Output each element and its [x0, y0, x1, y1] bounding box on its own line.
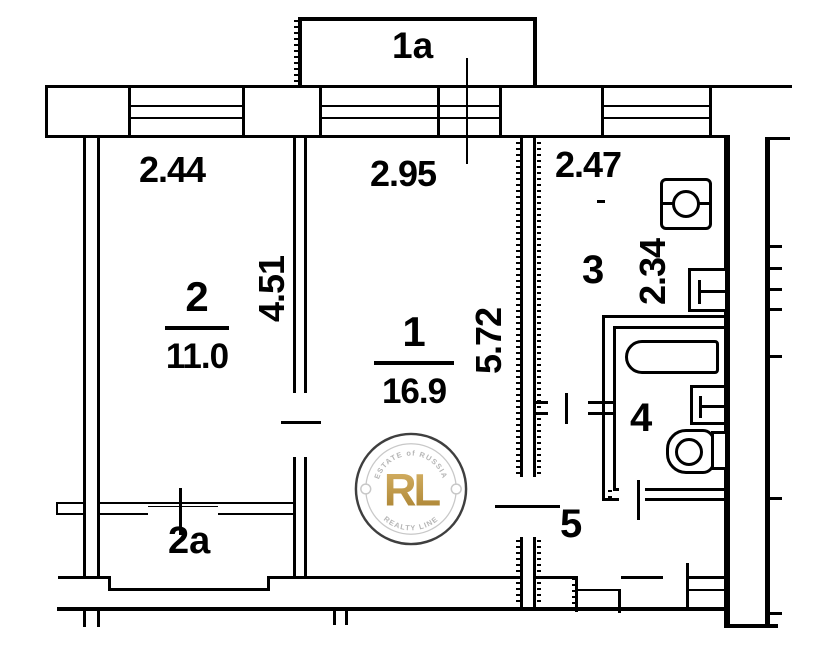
wall-hatch — [537, 142, 541, 475]
watermark-left-dot — [361, 484, 371, 494]
wall-segment — [565, 393, 568, 424]
wall-segment — [495, 505, 560, 508]
wall-segment — [613, 488, 619, 491]
toilet-tank-icon — [711, 431, 728, 470]
floor-plan: 2.44 2.95 2.47 4.51 5.72 2.34 2 11.0 1 1… — [0, 0, 837, 650]
wall-segment — [97, 611, 100, 627]
wall-segment — [45, 85, 48, 138]
wall-segment — [613, 326, 616, 488]
wall-segment — [645, 498, 726, 501]
wall-segment — [97, 138, 100, 578]
wall-segment — [575, 576, 578, 612]
wall-segment — [333, 611, 336, 625]
wall-segment — [688, 589, 726, 591]
wash-basin-icon — [690, 385, 727, 425]
wall-segment — [319, 85, 322, 138]
wall-segment — [466, 58, 468, 164]
watermark-monogram: RL — [384, 465, 441, 516]
bathtub-icon — [625, 340, 719, 374]
wall-segment — [108, 588, 270, 591]
wall-segment — [604, 105, 709, 107]
wall-segment — [770, 267, 782, 270]
wall-segment — [45, 85, 792, 88]
wall-segment — [520, 138, 523, 477]
wall-segment — [637, 480, 640, 520]
wall-segment — [298, 17, 302, 87]
wall-segment — [601, 85, 604, 138]
wall-segment — [499, 85, 502, 138]
room-1-area: 16.9 — [352, 374, 476, 409]
wall-segment — [322, 117, 437, 119]
room-1-number: 1 — [374, 311, 453, 365]
watermark-right-dot — [451, 484, 461, 494]
wall-hatch — [516, 540, 520, 604]
wall-segment — [304, 138, 307, 393]
wall-segment — [345, 611, 348, 625]
wall-segment — [57, 607, 729, 611]
wall-segment — [131, 117, 242, 119]
wall-segment — [533, 17, 537, 87]
room-2-area: 11.0 — [132, 339, 262, 374]
wall-segment — [218, 513, 296, 515]
wall-segment — [686, 563, 689, 608]
stove-icon — [660, 178, 712, 230]
wall-segment — [520, 537, 523, 607]
wall-segment — [83, 611, 86, 627]
wall-segment — [770, 497, 782, 500]
wall-segment — [440, 117, 499, 119]
wall-segment — [618, 589, 621, 613]
dim-room2-width: 2.44 — [139, 152, 205, 188]
dim-room1-width: 2.95 — [370, 156, 436, 192]
room-2-label: 2 11.0 — [132, 276, 262, 374]
wall-segment — [131, 105, 242, 107]
wall-segment — [100, 513, 148, 515]
toilet-icon — [666, 429, 715, 474]
wall-segment — [56, 502, 85, 504]
wall-segment — [730, 624, 778, 628]
wall-segment — [83, 138, 86, 578]
wall-segment — [604, 117, 709, 119]
wall-segment — [724, 137, 730, 628]
dim-room1-depth: 5.72 — [471, 296, 507, 386]
wall-segment — [293, 138, 296, 393]
wall-segment — [281, 421, 321, 424]
wall-hatch — [537, 540, 541, 604]
wall-segment — [293, 457, 296, 578]
wall-segment — [770, 288, 782, 291]
wall-segment — [56, 513, 85, 515]
wall-segment — [621, 576, 663, 579]
room-1-label: 1 16.9 — [352, 311, 476, 409]
wall-segment — [645, 488, 726, 491]
wall-segment — [56, 502, 58, 515]
room-4-label: 4 — [630, 398, 652, 438]
wall-segment — [440, 105, 499, 107]
wall-segment — [533, 138, 536, 477]
wall-hatch — [608, 490, 612, 502]
wall-hatch — [572, 578, 575, 610]
wall-segment — [709, 85, 712, 138]
wall-segment — [304, 457, 307, 578]
wall-segment — [597, 200, 605, 203]
wall-segment — [100, 502, 296, 504]
watermark-stamp: ESTATE of RUSSIA REALTY LINE RL — [352, 430, 470, 548]
room-2-number: 2 — [165, 276, 228, 330]
wall-segment — [45, 135, 712, 138]
wall-hatch — [516, 142, 520, 475]
wall-segment — [765, 137, 790, 140]
wall-segment — [128, 85, 131, 138]
kitchen-sink-icon — [688, 268, 728, 312]
wall-segment — [613, 326, 726, 329]
wall-segment — [298, 17, 537, 21]
wall-segment — [533, 537, 536, 607]
room-1a-label: 1a — [392, 27, 433, 64]
wall-segment — [148, 506, 218, 507]
wall-segment — [322, 105, 437, 107]
wall-segment — [688, 576, 726, 579]
wall-segment — [58, 576, 111, 579]
dim-room3-depth: 2.34 — [635, 227, 671, 317]
wall-segment — [770, 245, 782, 248]
wall-segment — [242, 85, 245, 138]
wall-segment — [770, 355, 782, 358]
wall-hatch — [294, 20, 298, 84]
wall-segment — [270, 576, 521, 579]
room-2a-label: 2a — [168, 522, 210, 560]
dim-room3-width: 2.47 — [555, 147, 621, 183]
wall-segment — [765, 137, 770, 628]
wall-segment — [770, 612, 782, 615]
wall-segment — [536, 576, 577, 579]
wall-segment — [770, 308, 782, 311]
wall-segment — [578, 589, 620, 591]
room-3-label: 3 — [582, 250, 604, 290]
wall-segment — [602, 315, 605, 501]
room-5-label: 5 — [560, 504, 582, 544]
wall-segment — [437, 85, 440, 138]
